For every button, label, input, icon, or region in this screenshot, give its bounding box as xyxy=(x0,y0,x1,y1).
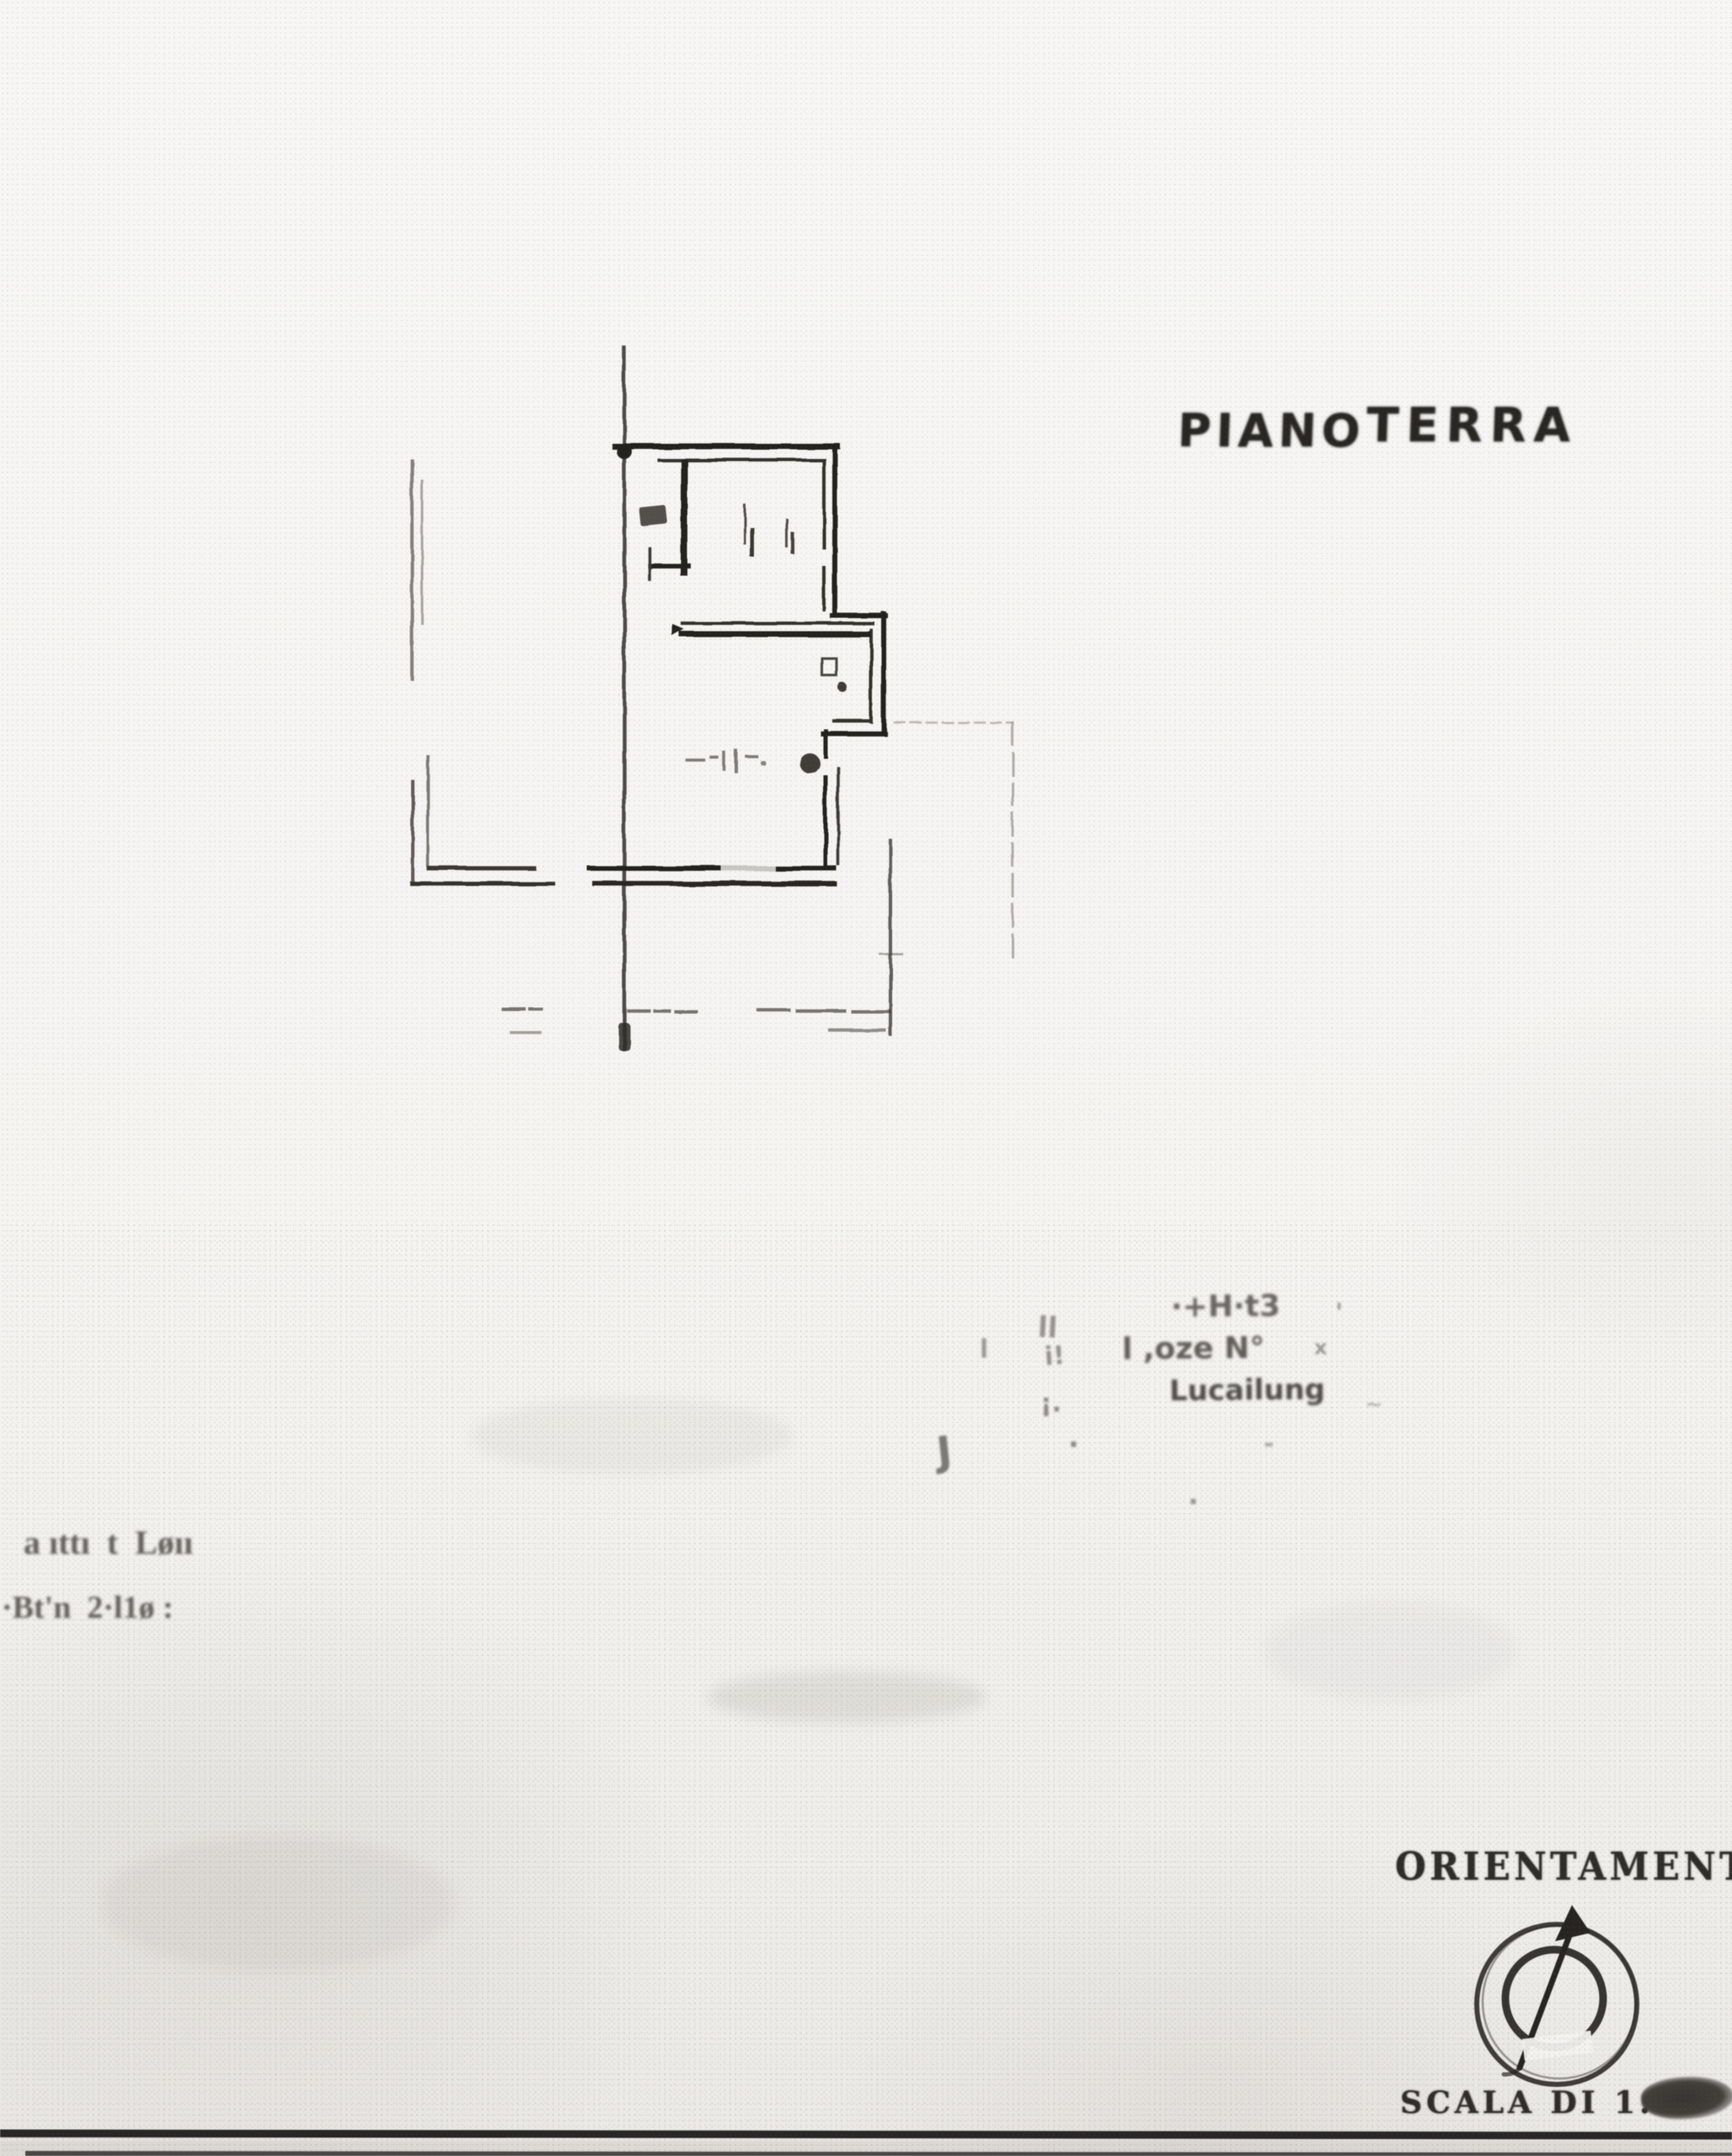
stamp-fragment-line3: Lucailung xyxy=(1169,1375,1325,1406)
stamp-speck: - xyxy=(1264,1432,1274,1457)
plan-artwork xyxy=(0,0,1732,2156)
margin-note-line1: a ıttı t Løıı xyxy=(24,1526,193,1560)
stamp-speck: i! xyxy=(1044,1343,1066,1370)
stamp-speck: ~ xyxy=(1365,1394,1383,1416)
floor-label-piano: PIANO xyxy=(1177,408,1366,454)
stamp-speck: l xyxy=(980,1337,988,1363)
window-mark xyxy=(639,504,667,526)
orientation-compass-icon xyxy=(1477,1905,1637,2084)
scan-smudge xyxy=(101,1836,455,1971)
stamp-speck: x xyxy=(1314,1337,1327,1358)
scale-label: SCALA DI 1. xyxy=(1400,2088,1654,2118)
floor-plan xyxy=(412,348,1013,1051)
door-swing-blob xyxy=(799,753,820,773)
stamp-speck: . xyxy=(1068,1423,1079,1452)
dashed-property-line xyxy=(504,1010,890,1011)
scan-smudge xyxy=(708,1672,986,1722)
scan-smudge xyxy=(472,1398,792,1474)
bottom-border-rules xyxy=(0,2132,1732,2156)
floor-label-terra: TERRA xyxy=(1366,403,1579,450)
illegible-room-marks xyxy=(687,751,756,771)
stamp-fragment-line2: l ,oze N° xyxy=(1122,1333,1265,1364)
orientation-title: ORIENTAMENTO xyxy=(1395,1848,1732,1886)
margin-note-line2: ·Bt'n 2·l1ø : xyxy=(2,1592,174,1624)
stamp-speck: ' xyxy=(1335,1301,1343,1326)
scan-smudge xyxy=(1264,1600,1516,1701)
boundary-end-blob xyxy=(618,1022,630,1051)
scanned-cadastral-plan-page: PIANO TERRA ·+H·t3 l ,oze N° Lucailung l… xyxy=(0,0,1732,2156)
stamp-speck: ll xyxy=(1037,1313,1058,1342)
stamp-speck: . xyxy=(1188,1481,1199,1509)
stamp-speck: ¡. xyxy=(1040,1391,1061,1417)
stamp-fragment-line1: ·+H·t3 xyxy=(1171,1291,1280,1322)
